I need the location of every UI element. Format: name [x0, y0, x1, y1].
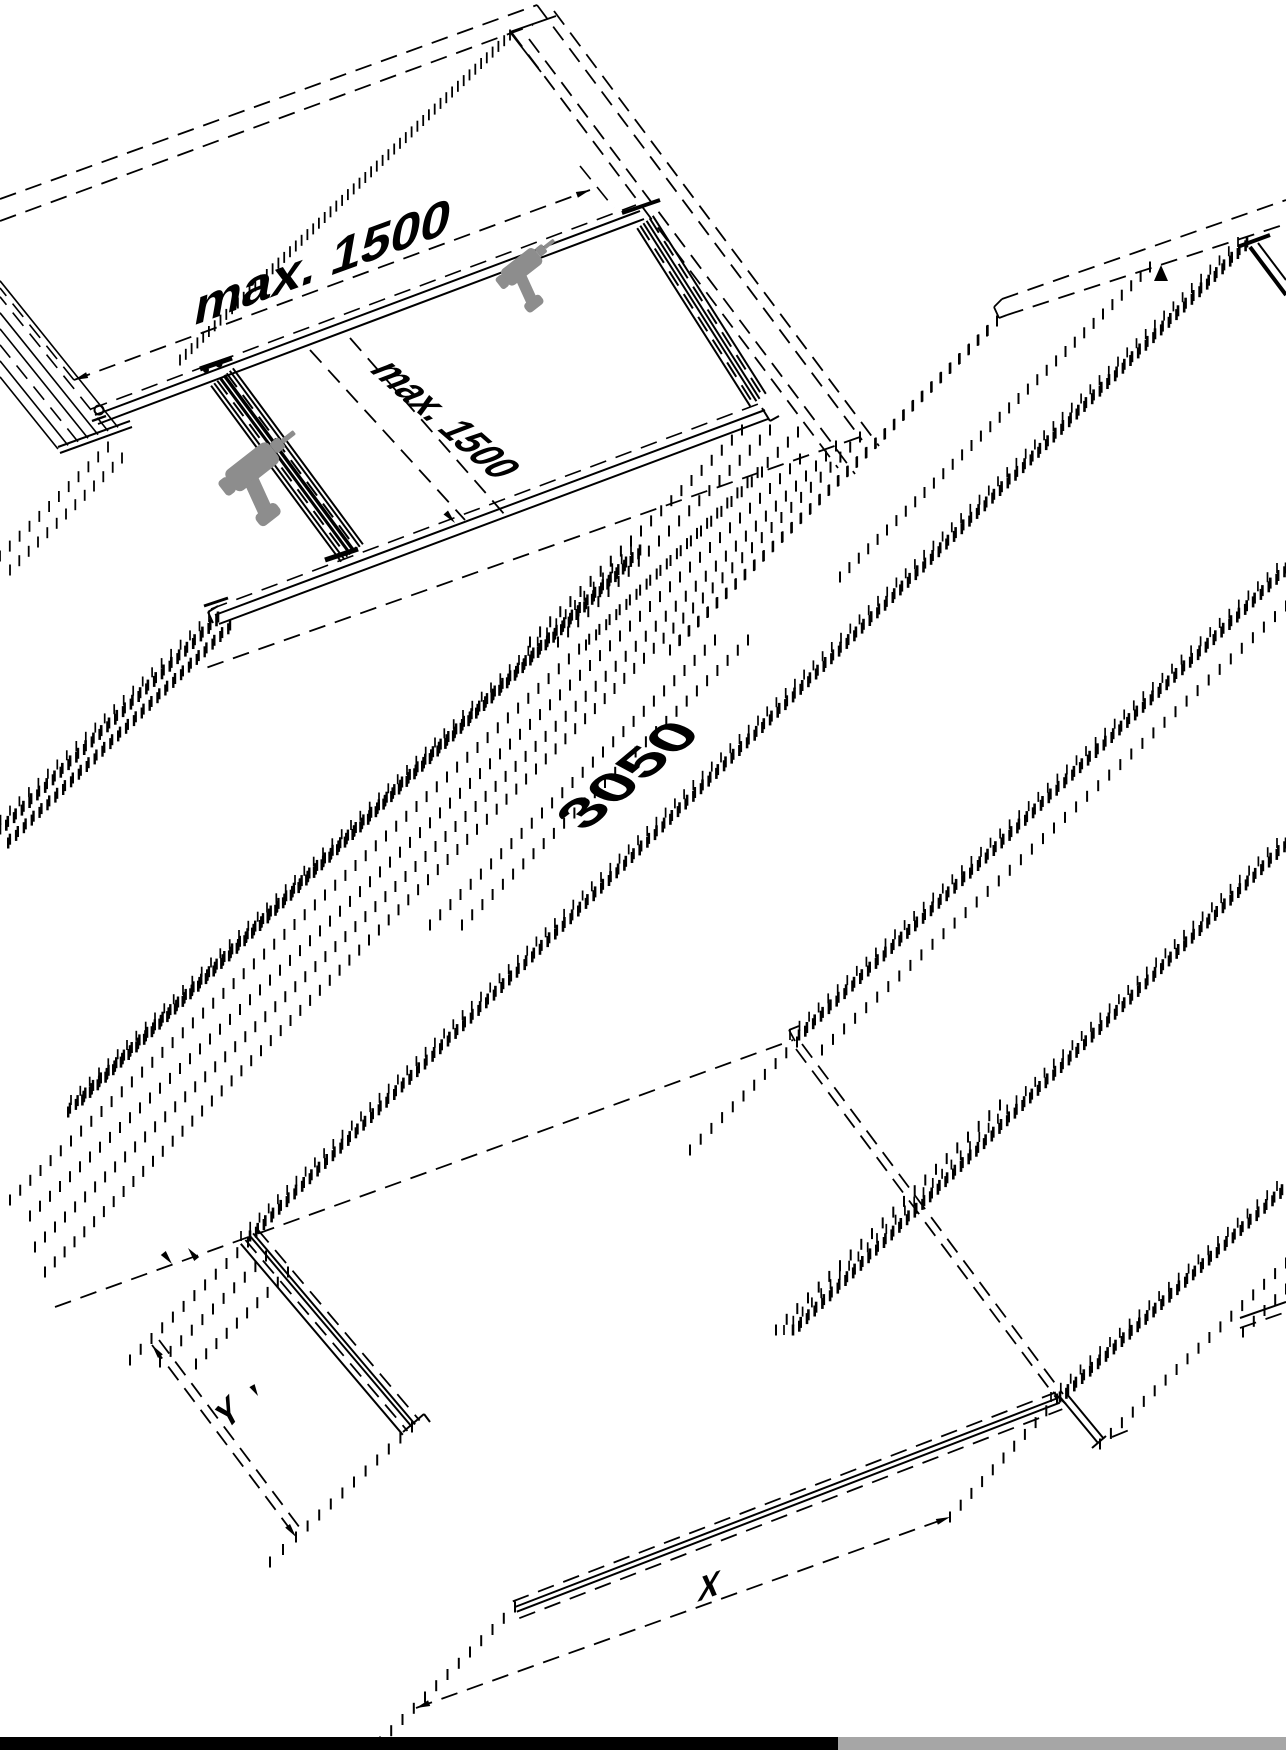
svg-text:3050: 3050 [541, 713, 715, 837]
svg-text:Y: Y [211, 1387, 245, 1439]
svg-text:max. 1500: max. 1500 [190, 186, 456, 338]
svg-text:X: X [696, 1563, 723, 1610]
svg-text:max. 1500: max. 1500 [358, 356, 532, 484]
